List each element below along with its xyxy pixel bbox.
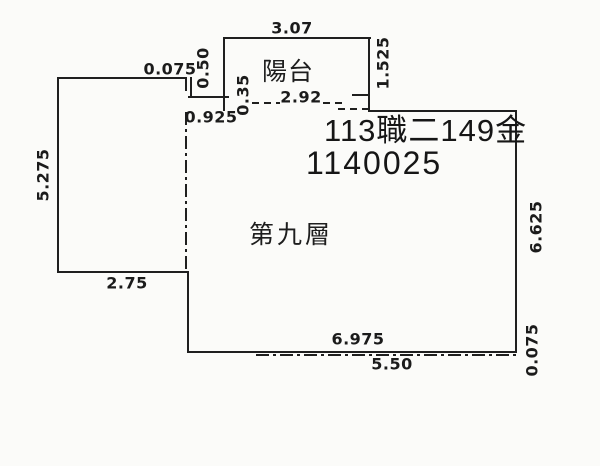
- dim-main-right-height: 6.625: [527, 200, 546, 253]
- dim-annex-height: 5.275: [34, 148, 53, 201]
- boundary-top-tick: [185, 79, 187, 91]
- dim-left-inset: 0.925: [184, 108, 237, 127]
- main-top-hidden-edge-dashed: [338, 108, 370, 110]
- step-wall-vertical: [190, 77, 192, 98]
- balcony-wall-left: [223, 37, 225, 111]
- balcony-wall-right: [368, 37, 370, 112]
- stamp-serial-number: 1140025: [306, 147, 442, 179]
- dim-boundary-bottom-width: 5.50: [371, 355, 412, 374]
- floor-plan-canvas: 陽台 第九層 113職二149金 1140025 3.07 0.075 0.50…: [0, 0, 600, 466]
- dim-balcony-width: 3.07: [271, 19, 312, 38]
- annex-wall-left: [57, 77, 59, 273]
- dim-balcony-inner-width: 2.92: [280, 88, 321, 107]
- balcony-label: 陽台: [262, 52, 314, 88]
- dim-top-left-offset: 0.075: [143, 60, 196, 79]
- boundary-line-left: [185, 112, 187, 272]
- dim-balcony-height: 1.525: [374, 36, 393, 89]
- stamp-case-number: 113職二149金: [324, 115, 527, 146]
- balcony-dim-tick: [352, 94, 369, 96]
- balcony-inner-edge-dashed-left: [252, 102, 280, 104]
- main-wall-bottom: [187, 351, 517, 353]
- main-floor-label: 第九層: [249, 215, 333, 251]
- balcony-inner-edge-dashed-right: [323, 102, 345, 104]
- main-wall-left-lower: [187, 271, 189, 353]
- dim-bottom-right-offset: 0.075: [523, 323, 542, 376]
- dim-step-height: 0.50: [194, 47, 213, 88]
- dim-annex-width: 2.75: [106, 274, 147, 293]
- main-wall-top: [368, 110, 517, 112]
- dim-main-bottom-width: 6.975: [331, 330, 384, 349]
